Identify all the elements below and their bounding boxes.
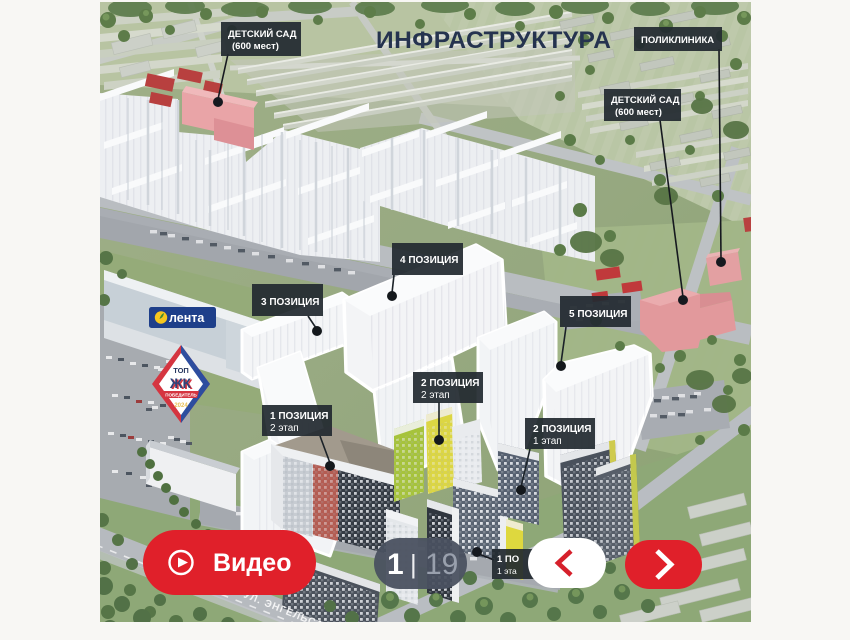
svg-text:(600 мест): (600 мест) — [232, 41, 279, 52]
svg-text:1 этап: 1 этап — [533, 436, 562, 447]
svg-text:2 ПОЗИЦИЯ: 2 ПОЗИЦИЯ — [533, 424, 591, 435]
svg-text:1 эта: 1 эта — [497, 566, 517, 576]
svg-text:ТОП: ТОП — [173, 366, 189, 375]
svg-text:3 ПОЗИЦИЯ: 3 ПОЗИЦИЯ — [261, 297, 319, 308]
svg-text:1: 1 — [387, 548, 404, 581]
svg-text:5 ПОЗИЦИЯ: 5 ПОЗИЦИЯ — [569, 309, 627, 320]
svg-text:ЖК: ЖК — [169, 375, 192, 391]
svg-text:2 ПОЗИЦИЯ: 2 ПОЗИЦИЯ — [421, 378, 479, 389]
svg-text:1 ПО: 1 ПО — [497, 554, 519, 565]
svg-text:1 ПОЗИЦИЯ: 1 ПОЗИЦИЯ — [270, 411, 328, 422]
svg-text:2024: 2024 — [174, 403, 188, 409]
svg-text:(600 мест): (600 мест) — [615, 107, 662, 118]
svg-text:ИНФРАСТРУКТУРА: ИНФРАСТРУКТУРА — [376, 27, 611, 54]
svg-text:ДЕТСКИЙ САД: ДЕТСКИЙ САД — [228, 28, 297, 40]
svg-text:2 этап: 2 этап — [270, 423, 299, 434]
svg-text:ПОБЕДИТЕЛЬ: ПОБЕДИТЕЛЬ — [165, 393, 197, 398]
svg-text:ДЕТСКИЙ САД: ДЕТСКИЙ САД — [611, 94, 680, 106]
svg-text:4 ПОЗИЦИЯ: 4 ПОЗИЦИЯ — [400, 255, 458, 266]
svg-text:19: 19 — [425, 548, 458, 581]
svg-text:ПОЛИКЛИНИКА: ПОЛИКЛИНИКА — [641, 35, 714, 46]
svg-text:|: | — [410, 549, 417, 579]
svg-text:2 этап: 2 этап — [421, 390, 450, 401]
svg-text:Видео: Видео — [213, 549, 291, 577]
svg-text:лента: лента — [169, 311, 205, 325]
